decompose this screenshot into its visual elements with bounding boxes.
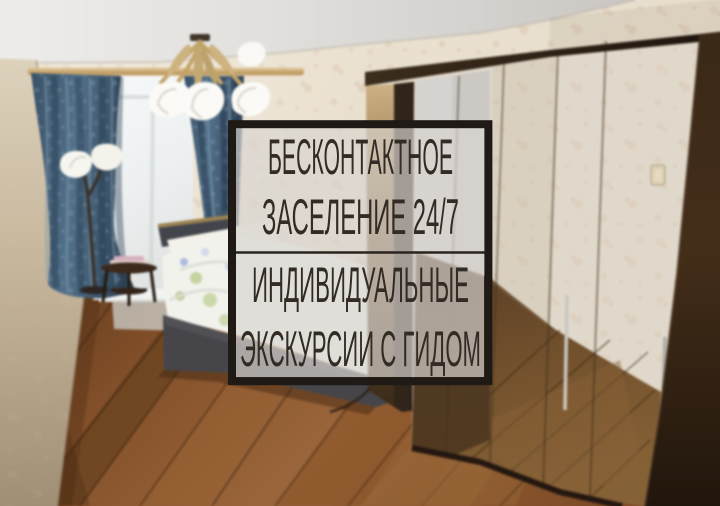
svg-text:ЭКСКУРСИИ С ГИДОМ: ЭКСКУРСИИ С ГИДОМ xyxy=(240,321,481,377)
svg-text:ИНДИВИДУАЛЬНЫЕ: ИНДИВИДУАЛЬНЫЕ xyxy=(252,257,469,313)
svg-text:ЗАСЕЛЕНИЕ 24/7: ЗАСЕЛЕНИЕ 24/7 xyxy=(262,189,459,245)
svg-text:БЕСКОНТАКТНОЕ: БЕСКОНТАКТНОЕ xyxy=(268,129,453,185)
